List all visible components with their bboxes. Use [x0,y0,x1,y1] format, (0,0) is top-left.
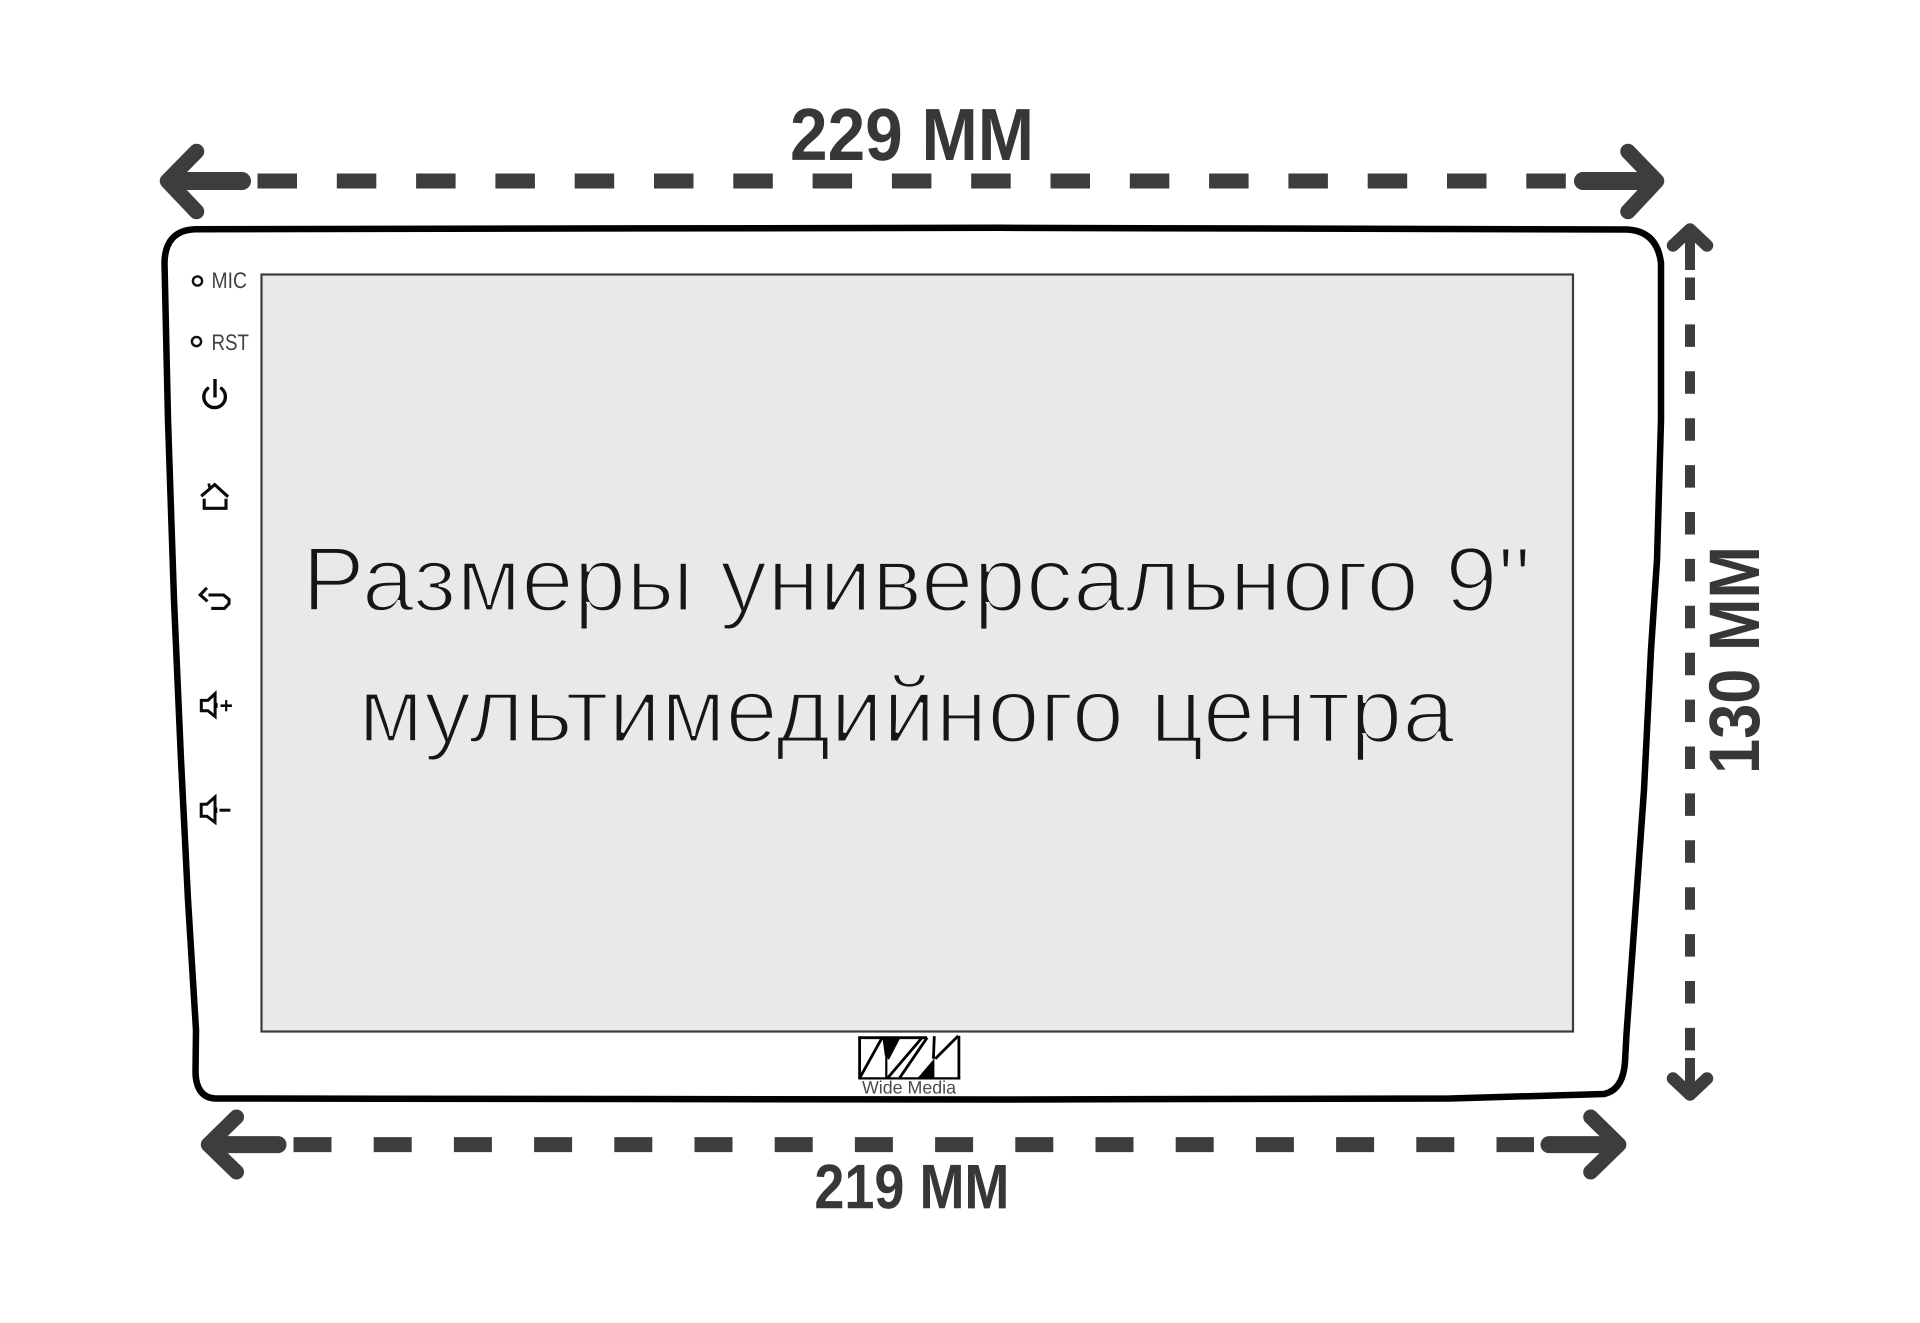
svg-text:Размеры универсального 9": Размеры универсального 9" [302,529,1531,631]
svg-text:MIC: MIC [211,268,247,293]
svg-text:219 ММ: 219 ММ [814,1152,1009,1222]
svg-text:130 ММ: 130 ММ [1696,546,1775,774]
svg-text:Wide Media: Wide Media [862,1077,957,1097]
svg-text:RST: RST [211,330,249,355]
svg-text:мультимедийного центра: мультимедийного центра [358,660,1455,762]
svg-text:229 ММ: 229 ММ [790,93,1034,176]
